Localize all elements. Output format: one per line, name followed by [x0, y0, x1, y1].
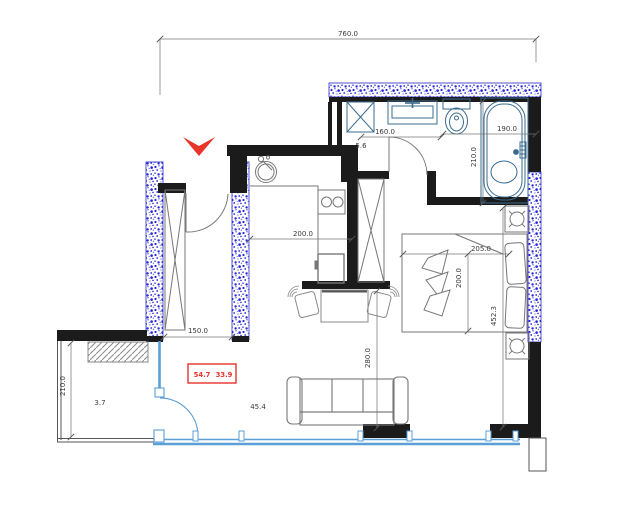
- living-wardrobe: [358, 179, 384, 282]
- floor-plan-canvas: 760.0 160.0 5.6 190.0 210.0 200.0 150.0 …: [0, 0, 624, 525]
- dim-bath-depth: 210.0: [470, 147, 478, 167]
- dim-bed-length: 205.0: [471, 245, 491, 253]
- pillow-icon: [505, 287, 526, 329]
- area-secondary: 33.9: [216, 371, 233, 379]
- dining-table-icon: [321, 290, 368, 322]
- bathroom: [347, 98, 528, 203]
- fridge-icon: [318, 254, 344, 283]
- dim-bedroom-depth: 452.3: [490, 306, 498, 326]
- pillow-icon: [505, 242, 527, 284]
- area-balcony: 3.7: [94, 399, 105, 407]
- area-total: 54.7: [194, 371, 211, 379]
- bedroom: [402, 206, 529, 359]
- dim-bath-width: 190.0: [497, 125, 517, 133]
- dim-living-depth: 280.0: [364, 348, 372, 368]
- bathroom-door-arc: [389, 137, 427, 175]
- dim-total-width: 760.0: [338, 30, 358, 38]
- floor-plan-drawing: 760.0 160.0 5.6 190.0 210.0 200.0 150.0 …: [0, 0, 624, 525]
- sofa-icon: [287, 377, 408, 425]
- dim-balcony-depth: 210.0: [59, 376, 67, 396]
- window-glazing: [153, 341, 520, 444]
- dim-hall: 150.0: [188, 327, 208, 335]
- dining-set: [288, 286, 399, 322]
- kitchen-counter: [250, 186, 318, 254]
- area-living: 45.4: [250, 403, 266, 411]
- bathroom-door: [389, 137, 427, 175]
- window-pier-left: [363, 424, 410, 438]
- top-hatched-wall: [329, 83, 541, 97]
- total-area-box: 54.7 33.9: [188, 364, 236, 383]
- hatched-exterior-walls: [146, 83, 541, 342]
- entry-door-arc: [186, 194, 228, 232]
- dim-kitchen: 200.0: [293, 230, 313, 238]
- chair-left-icon: [294, 291, 319, 318]
- balcony-door-arc: [160, 398, 198, 436]
- black-walls: [57, 97, 541, 438]
- right-hatched-wall: [528, 172, 541, 342]
- balcony-slab-right: [529, 438, 546, 471]
- balcony-hatch-cabinet: [88, 342, 148, 362]
- balcony-door-post: [155, 388, 164, 397]
- balcony: [57, 341, 159, 442]
- nightstand-bottom-icon: [506, 333, 529, 359]
- dim-bed-width: 200.0: [455, 268, 463, 288]
- balcony-top-wall: [57, 330, 147, 341]
- chair-right-icon: [367, 291, 392, 318]
- entry-hall: [165, 190, 228, 330]
- nightstand-top-icon: [505, 206, 529, 232]
- kitchen-partition-wall: [347, 156, 358, 289]
- area-bathroom: 5.6: [355, 142, 367, 150]
- entrance-arrow-icon: [183, 137, 215, 156]
- dim-vanity: 160.0: [375, 128, 395, 136]
- kitchen: [250, 156, 345, 283]
- entry-door-jamb-left: [158, 183, 186, 193]
